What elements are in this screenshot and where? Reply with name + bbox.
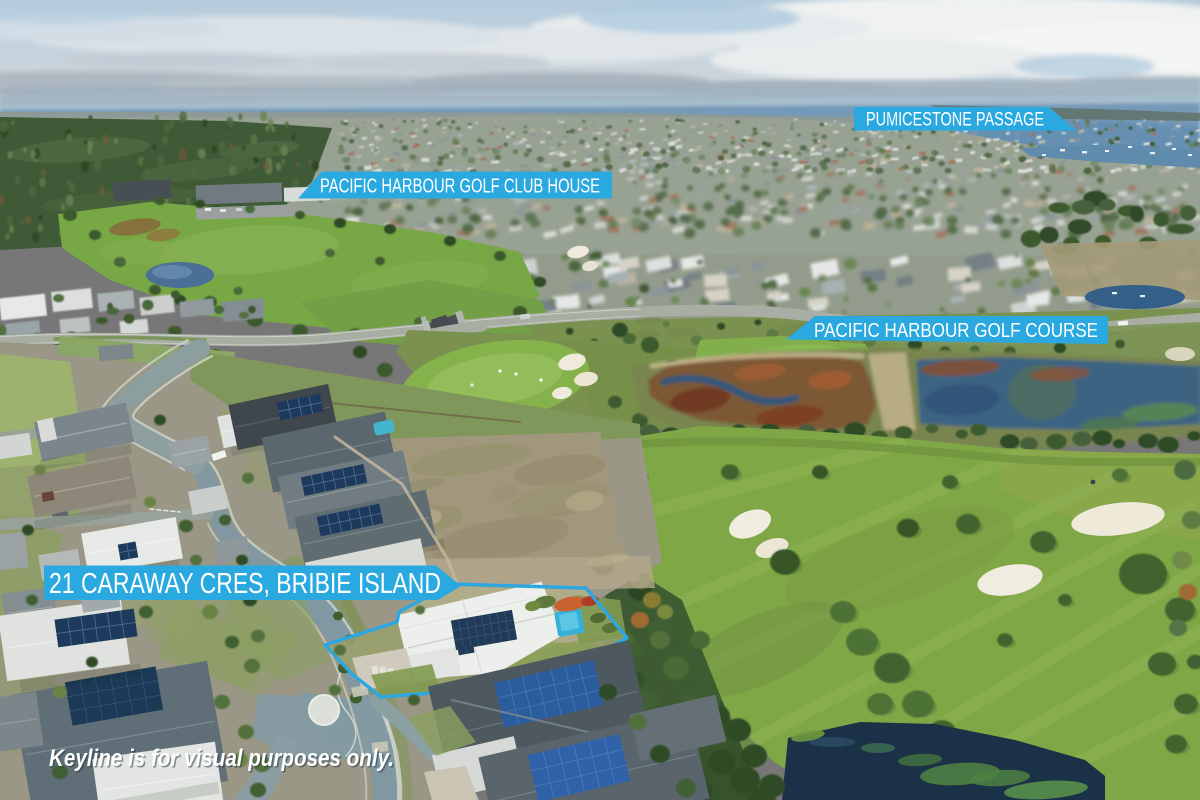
svg-text:21 CARAWAY CRES, BRIBIE ISLAND: 21 CARAWAY CRES, BRIBIE ISLAND bbox=[49, 568, 441, 600]
svg-text:PACIFIC HARBOUR GOLF CLUB HOUS: PACIFIC HARBOUR GOLF CLUB HOUSE bbox=[320, 175, 600, 198]
svg-text:PUMICESTONE PASSAGE: PUMICESTONE PASSAGE bbox=[866, 110, 1044, 131]
svg-text:Keyline is for visual purposes: Keyline is for visual purposes only. bbox=[49, 745, 394, 772]
svg-text:PACIFIC HARBOUR GOLF COURSE: PACIFIC HARBOUR GOLF COURSE bbox=[814, 319, 1098, 342]
